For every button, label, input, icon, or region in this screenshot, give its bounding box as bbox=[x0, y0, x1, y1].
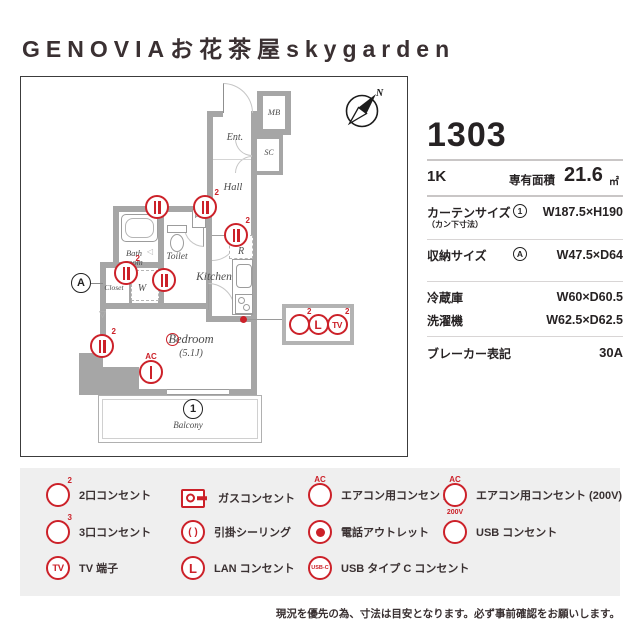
ac200-outlet-icon: AC200V bbox=[443, 483, 467, 507]
lan-label: L bbox=[314, 318, 321, 332]
legend-item-usb: USB USB コンセント bbox=[443, 520, 557, 544]
legend-item-gas: ガスコンセント bbox=[181, 486, 295, 510]
tv-label: TV bbox=[332, 320, 342, 330]
unit-type: 1K bbox=[427, 168, 446, 185]
legend-label: エアコン用コンセント (200V) bbox=[476, 487, 622, 503]
tv-terminal-icon: TV bbox=[46, 556, 70, 580]
curtain-marker: 1 bbox=[513, 204, 527, 218]
usb-outlet-icon: USB bbox=[443, 520, 467, 544]
entry-door-arc bbox=[223, 83, 253, 113]
outlet-count-label: 2 bbox=[215, 188, 219, 197]
storage-marker-label: A bbox=[517, 249, 523, 259]
legend-label: 電話アウトレット bbox=[341, 524, 429, 540]
legend-item-outlet3: 3 3口コンセント bbox=[46, 520, 151, 544]
outlet2-washer: 2 bbox=[114, 261, 138, 285]
lan-label: L bbox=[189, 561, 197, 576]
room-label-kitchen: Kitchen bbox=[184, 271, 244, 284]
legend-label: エアコン用コンセント bbox=[341, 487, 451, 503]
legend-item-ac200: AC200V エアコン用コンセント (200V) bbox=[443, 483, 622, 507]
marker-1-label: 1 bbox=[190, 403, 196, 415]
washer-label: 洗濯機 bbox=[427, 312, 463, 329]
outlet2-hall: 2 bbox=[193, 195, 217, 219]
outlet2-bedroom: 2 bbox=[90, 334, 114, 358]
floorplan-sheet: { "title": "GENOVIAお花茶屋skygarden", "unit… bbox=[0, 0, 640, 640]
legend-item-tv: TV TV 端子 bbox=[46, 556, 118, 580]
room-label-closet: Closet bbox=[94, 284, 134, 292]
breaker-label: ブレーカー表記 bbox=[427, 345, 511, 362]
kitchen-door-arc bbox=[208, 283, 235, 310]
legend-item-ceiling: ( ) 引掛シーリング bbox=[181, 520, 291, 544]
outlet2-toilet-bottom bbox=[152, 268, 176, 292]
outlet-count-label: 2 bbox=[112, 327, 116, 336]
kitchen-counter bbox=[232, 259, 253, 315]
ac-label: AC bbox=[314, 475, 326, 484]
balcony-area bbox=[98, 395, 262, 443]
room-label-washer: W bbox=[132, 283, 152, 294]
compass-n-label: N bbox=[375, 88, 384, 99]
legend-item-ac: AC エアコン用コンセント bbox=[308, 483, 451, 507]
lan-outlet-icon: L bbox=[181, 556, 205, 580]
room-label-hall: Hall bbox=[213, 182, 253, 194]
legend-panel: 2 2口コンセント 3 3口コンセント TV TV 端子 ガスコンセント ( )… bbox=[20, 468, 620, 596]
usbc-label: USB-C bbox=[311, 565, 328, 571]
outlet-count-label: 3 bbox=[68, 513, 72, 522]
legend-label: TV 端子 bbox=[79, 560, 118, 576]
vent-mark: ▽ bbox=[99, 309, 106, 320]
outlet-count-label: 2 bbox=[68, 476, 72, 485]
ac-outlet-icon: AC bbox=[308, 483, 332, 507]
unit-number: 1303 bbox=[427, 116, 507, 155]
compass-icon: N bbox=[339, 84, 387, 132]
room-label-toilet: Toilet bbox=[147, 252, 207, 262]
curtain-sublabel: （カン下寸法） bbox=[427, 219, 483, 230]
storage-value: W47.5×D64 bbox=[557, 248, 623, 262]
storage-label: 収納サイズ bbox=[427, 247, 487, 264]
legend-label: 3口コンセント bbox=[79, 524, 151, 540]
area-unit: ㎡ bbox=[609, 173, 619, 188]
ceiling-hook-icon bbox=[166, 333, 179, 346]
callout-point bbox=[240, 316, 247, 323]
fridge-value: W60×D60.5 bbox=[557, 290, 623, 304]
marker-a-label: A bbox=[77, 277, 85, 289]
legend-label: USB コンセント bbox=[476, 524, 557, 540]
tv-callout: TV2 bbox=[327, 314, 348, 335]
room-label-bedroom-size: (5.1J) bbox=[151, 348, 231, 359]
usbc-outlet-icon: USB-C bbox=[308, 556, 332, 580]
toilet-door-arc bbox=[184, 227, 204, 247]
washer-value: W62.5×D62.5 bbox=[546, 313, 623, 327]
breaker-value: 30A bbox=[599, 345, 623, 360]
lan-callout: L bbox=[308, 314, 329, 335]
outlet2-icon: 2 bbox=[46, 483, 70, 507]
room-label-mb: MB bbox=[254, 108, 294, 117]
room-label-bedroom: Bedroom bbox=[151, 333, 231, 347]
toilet-bowl-icon bbox=[170, 234, 184, 252]
outlet3-icon: 3 bbox=[46, 520, 70, 544]
usb-label: USB bbox=[448, 529, 462, 536]
stove-icon bbox=[235, 294, 253, 314]
disclaimer-note: 現況を優先の為、寸法は目安となります。必ず事前確認をお願いします。 bbox=[200, 606, 620, 621]
legend-item-usbc: USB-C USB タイプ C コンセント bbox=[308, 556, 469, 580]
outlet-count-label: 2 bbox=[136, 254, 140, 263]
area-value: 21.6 bbox=[564, 164, 603, 187]
phone-outlet-icon bbox=[308, 520, 332, 544]
legend-label: ガスコンセント bbox=[218, 490, 295, 506]
curtain-value: W187.5×H190 bbox=[543, 205, 623, 219]
area-label: 専有面積 bbox=[509, 172, 555, 188]
legend-label: LAN コンセント bbox=[214, 560, 295, 576]
legend-label: USB タイプ C コンセント bbox=[341, 560, 469, 576]
room-label-balcony: Balcony bbox=[138, 421, 238, 431]
outlet2-fridge: 2 bbox=[224, 223, 248, 247]
outlet-count-label: 2 bbox=[307, 307, 311, 316]
marker-a-circle: A bbox=[71, 273, 91, 293]
marker-1-circle: 1 bbox=[183, 399, 203, 419]
room-label-fridge: R bbox=[231, 246, 251, 257]
ceiling-hook-legend-icon: ( ) bbox=[181, 520, 205, 544]
room-label-sc: SC bbox=[249, 149, 289, 158]
page-title: GENOVIAお花茶屋skygarden bbox=[22, 30, 455, 64]
gas-outlet-icon bbox=[181, 489, 205, 508]
ceiling-glyph: ( ) bbox=[188, 527, 197, 538]
legend-label: 引掛シーリング bbox=[214, 524, 291, 540]
ac-label: AC bbox=[145, 352, 157, 361]
fridge-label: 冷蔵庫 bbox=[427, 289, 463, 306]
legend-item-phone: 電話アウトレット bbox=[308, 520, 429, 544]
outlet2-toilet-top bbox=[145, 195, 169, 219]
tv-label: TV bbox=[52, 563, 63, 574]
room-label-ent: Ent. bbox=[215, 132, 255, 143]
outlet-count-label: 2 bbox=[345, 307, 349, 316]
callout-box: 2 L TV2 bbox=[282, 304, 354, 345]
curtain-marker-label: 1 bbox=[518, 206, 523, 216]
toilet-tank-icon bbox=[167, 225, 187, 233]
legend-label: 2口コンセント bbox=[79, 487, 151, 503]
callout-leader-line bbox=[247, 319, 282, 320]
voltage-label: 200V bbox=[447, 509, 463, 516]
legend-item-outlet2: 2 2口コンセント bbox=[46, 483, 151, 507]
storage-marker: A bbox=[513, 247, 527, 261]
outlet2-callout: 2 bbox=[289, 314, 310, 335]
entry-step-line bbox=[213, 159, 251, 160]
outlet-count-label: 2 bbox=[246, 216, 250, 225]
ac-label: AC bbox=[449, 475, 461, 484]
outlet-ac-bedroom: AC bbox=[139, 360, 163, 384]
floorplan-canvas: N bbox=[20, 76, 408, 457]
legend-item-lan: L LAN コンセント bbox=[181, 556, 295, 580]
